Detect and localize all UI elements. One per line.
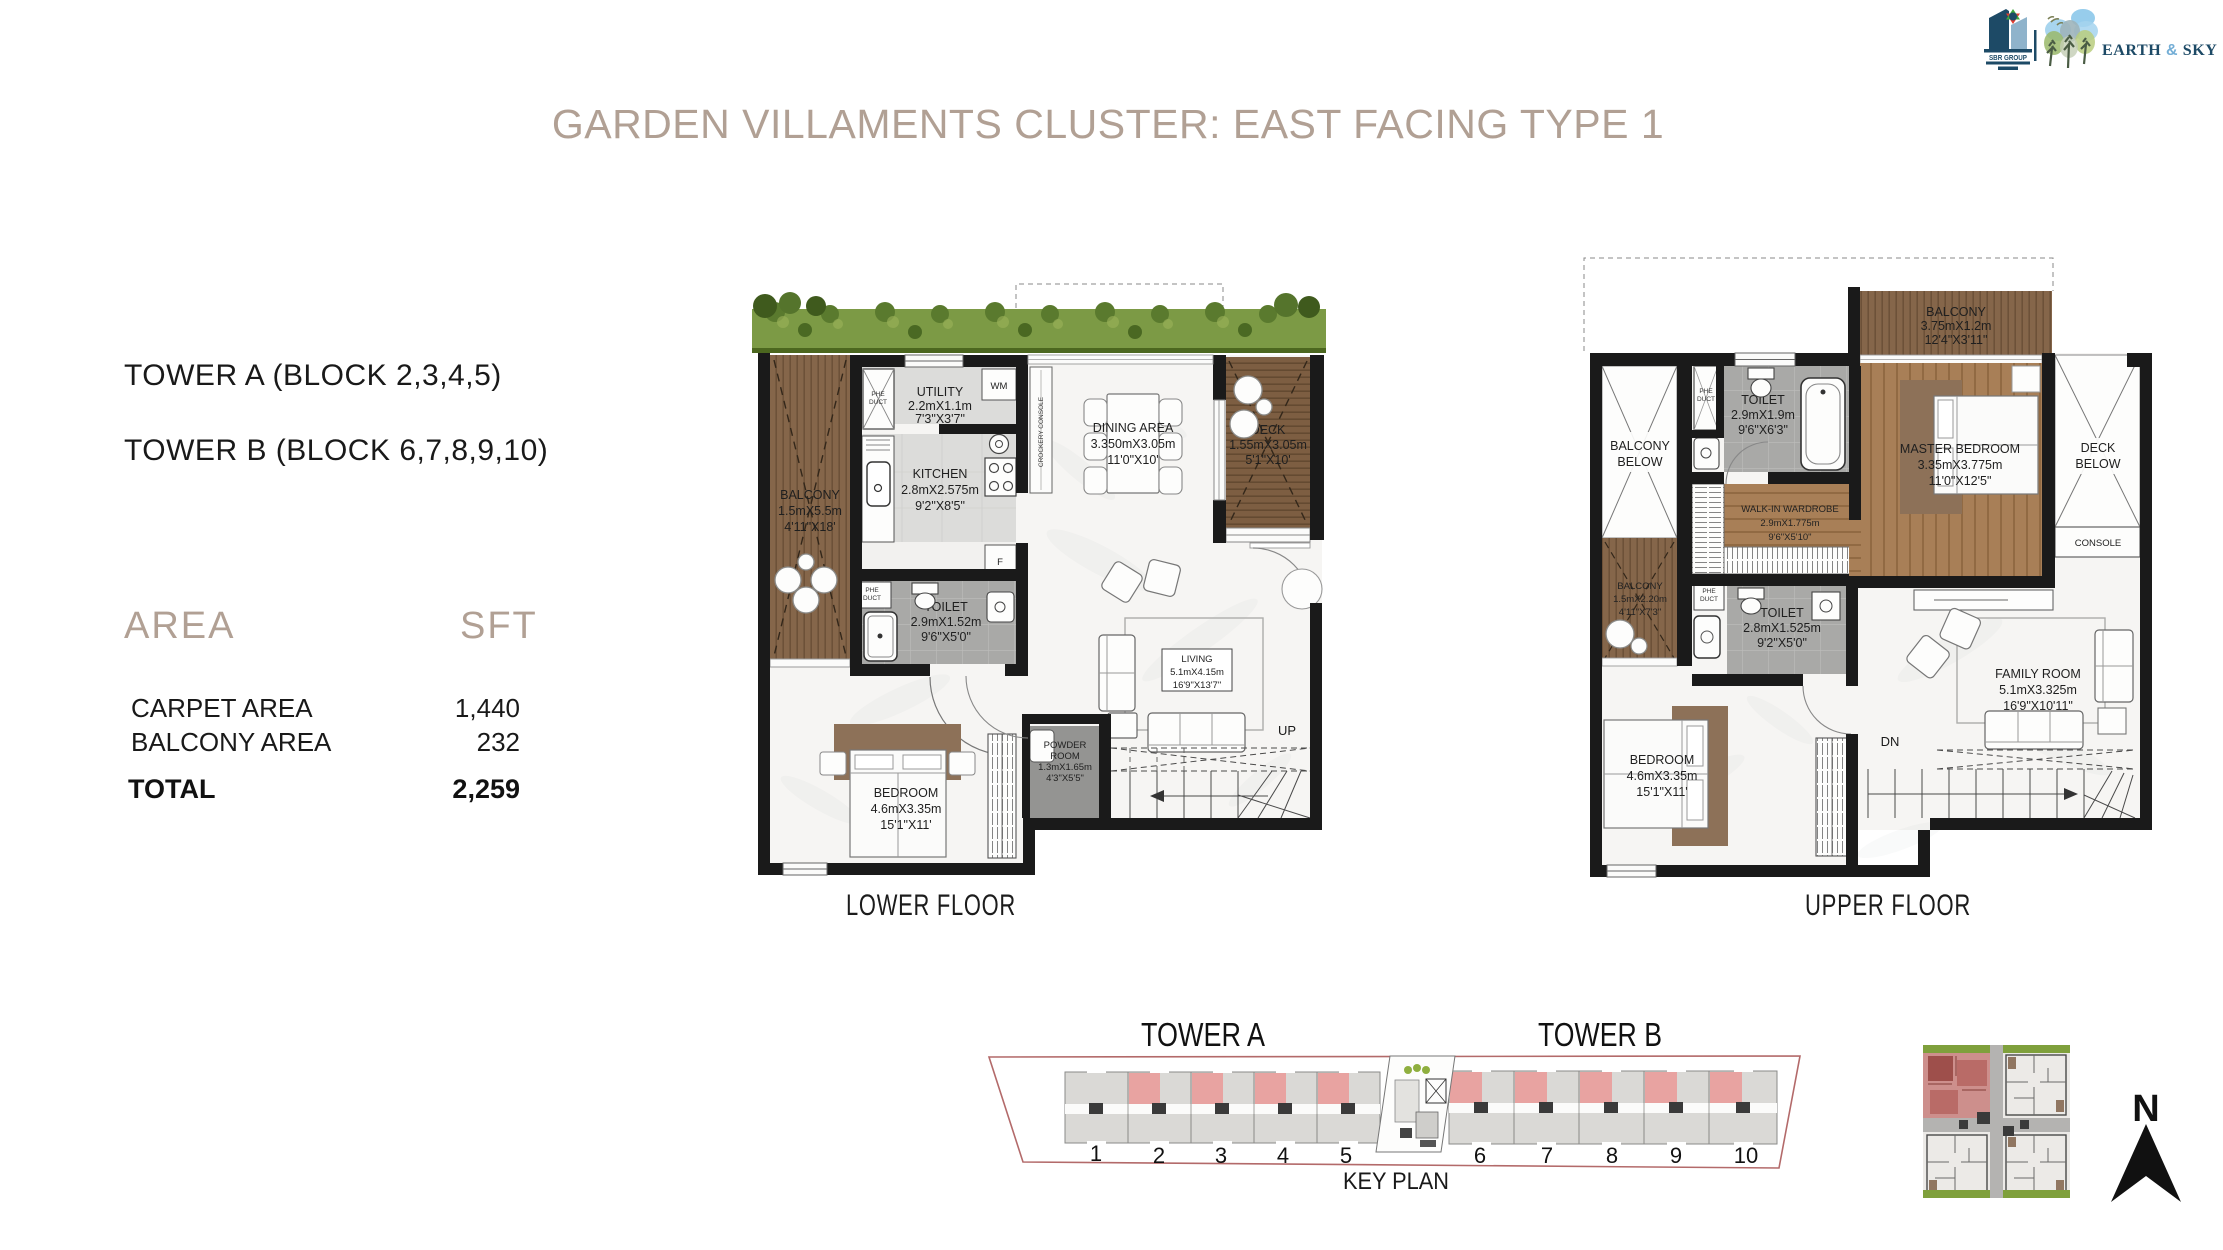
svg-text:BALCONY: BALCONY: [1617, 581, 1663, 592]
svg-text:GARDEN VILLAMENTS CLUSTER: EAS: GARDEN VILLAMENTS CLUSTER: EAST FACING T…: [552, 101, 1664, 147]
svg-text:PHE: PHE: [1699, 388, 1713, 395]
svg-text:4'11"X7'3": 4'11"X7'3": [1619, 607, 1661, 618]
svg-text:DUCT: DUCT: [869, 399, 887, 406]
svg-text:BALCONY: BALCONY: [1610, 439, 1670, 453]
svg-text:11'0"X12'5": 11'0"X12'5": [1929, 474, 1992, 488]
svg-text:BEDROOM: BEDROOM: [874, 786, 939, 800]
svg-text:KEY PLAN: KEY PLAN: [1343, 1168, 1449, 1195]
svg-text:9'6"X5'0": 9'6"X5'0": [921, 630, 971, 644]
svg-text:2.2mX1.1m: 2.2mX1.1m: [908, 399, 972, 413]
svg-text:9'6"X5'10": 9'6"X5'10": [1768, 532, 1811, 543]
svg-text:7: 7: [1541, 1143, 1553, 1168]
svg-text:TOILET: TOILET: [1760, 606, 1804, 620]
svg-text:5'1"X10': 5'1"X10': [1245, 453, 1290, 467]
svg-text:UP: UP: [1278, 723, 1296, 738]
svg-text:F: F: [997, 557, 1003, 568]
svg-text:EARTH & SKY: EARTH & SKY: [2102, 42, 2217, 59]
svg-text:SBR GROUP: SBR GROUP: [1989, 55, 2027, 62]
svg-text:4.6mX3.35m: 4.6mX3.35m: [871, 802, 942, 816]
svg-text:FAMILY ROOM: FAMILY ROOM: [1995, 667, 2081, 681]
svg-text:1.5mX2.20m: 1.5mX2.20m: [1613, 594, 1667, 605]
svg-text:10: 10: [1734, 1143, 1758, 1168]
svg-text:TOWER A: TOWER A: [1141, 1016, 1265, 1053]
svg-text:5.1mX4.15m: 5.1mX4.15m: [1170, 667, 1224, 678]
svg-text:2,259: 2,259: [452, 774, 520, 804]
svg-text:3.35mX3.775m: 3.35mX3.775m: [1918, 458, 2003, 472]
svg-text:CARPET AREA: CARPET AREA: [131, 693, 313, 723]
svg-text:CONSOLE: CONSOLE: [2075, 538, 2121, 549]
svg-text:4.6mX3.35m: 4.6mX3.35m: [1627, 769, 1698, 783]
svg-text:TOWER A (BLOCK 2,3,4,5): TOWER A (BLOCK 2,3,4,5): [124, 359, 502, 392]
svg-text:KITCHEN: KITCHEN: [913, 467, 968, 481]
svg-text:2.9mX1.9m: 2.9mX1.9m: [1731, 408, 1795, 422]
svg-text:4: 4: [1277, 1143, 1289, 1168]
svg-text:3.350mX3.05m: 3.350mX3.05m: [1091, 437, 1176, 451]
svg-text:BELOW: BELOW: [1617, 455, 1662, 469]
svg-text:16'9"X13'7": 16'9"X13'7": [1173, 680, 1221, 691]
svg-text:15'1"X11': 15'1"X11': [1636, 785, 1687, 799]
svg-text:232: 232: [477, 727, 520, 757]
svg-text:4'11"X18': 4'11"X18': [784, 520, 835, 534]
svg-text:PHE: PHE: [1702, 588, 1716, 595]
svg-text:DUCT: DUCT: [863, 595, 881, 602]
svg-text:3.75mX1.2m: 3.75mX1.2m: [1921, 319, 1992, 333]
svg-text:POWDER: POWDER: [1044, 740, 1087, 751]
svg-text:BELOW: BELOW: [2075, 457, 2120, 471]
svg-text:DN: DN: [1881, 734, 1900, 749]
svg-text:DECK: DECK: [2081, 441, 2116, 455]
svg-text:9'2"X5'0": 9'2"X5'0": [1757, 636, 1807, 650]
svg-text:LOWER FLOOR: LOWER FLOOR: [846, 889, 1016, 922]
svg-text:BEDROOM: BEDROOM: [1630, 753, 1695, 767]
svg-text:SFT: SFT: [460, 605, 538, 647]
svg-text:WALK-IN WARDROBE: WALK-IN WARDROBE: [1741, 504, 1838, 515]
svg-text:15'1"X11': 15'1"X11': [880, 818, 931, 832]
svg-text:9'6"X6'3": 9'6"X6'3": [1738, 423, 1788, 437]
svg-text:9: 9: [1670, 1143, 1682, 1168]
svg-text:WM: WM: [991, 381, 1008, 392]
svg-text:7'3"X3'7": 7'3"X3'7": [915, 412, 965, 426]
svg-text:9'2"X8'5": 9'2"X8'5": [915, 499, 965, 513]
svg-text:BALCONY: BALCONY: [780, 488, 840, 502]
svg-text:TOWER B: TOWER B: [1538, 1016, 1662, 1053]
svg-text:2.8mX2.575m: 2.8mX2.575m: [901, 483, 979, 497]
svg-text:5: 5: [1340, 1143, 1352, 1168]
svg-text:UTILITY: UTILITY: [917, 385, 964, 399]
svg-text:DUCT: DUCT: [1700, 596, 1718, 603]
svg-text:UPPER FLOOR: UPPER FLOOR: [1805, 889, 1971, 922]
svg-text:DUCT: DUCT: [1697, 396, 1715, 403]
svg-text:2: 2: [1153, 1143, 1165, 1168]
svg-text:2.8mX1.525m: 2.8mX1.525m: [1743, 621, 1821, 635]
svg-text:PHE: PHE: [865, 587, 879, 594]
svg-text:1,440: 1,440: [455, 693, 520, 723]
svg-text:3: 3: [1215, 1143, 1227, 1168]
svg-text:AREA: AREA: [124, 605, 235, 647]
svg-text:12'4"X3'11": 12'4"X3'11": [1925, 333, 1988, 347]
svg-text:11'0"X10': 11'0"X10': [1107, 453, 1158, 467]
svg-text:1.55mX3.05m: 1.55mX3.05m: [1229, 438, 1307, 452]
svg-text:2.9mX1.52m: 2.9mX1.52m: [911, 615, 982, 629]
svg-text:1.5mX5.5m: 1.5mX5.5m: [778, 504, 842, 518]
svg-text:1.3mX1.65m: 1.3mX1.65m: [1038, 762, 1092, 773]
svg-text:CROCKERY CONSOLE: CROCKERY CONSOLE: [1038, 396, 1045, 467]
svg-text:5.1mX3.325m: 5.1mX3.325m: [1999, 683, 2077, 697]
svg-text:BALCONY: BALCONY: [1926, 305, 1986, 319]
svg-text:6: 6: [1474, 1143, 1486, 1168]
svg-text:TOWER B (BLOCK 6,7,8,9,10): TOWER B (BLOCK 6,7,8,9,10): [124, 434, 548, 467]
svg-text:4'3"X5'5": 4'3"X5'5": [1046, 773, 1084, 784]
svg-text:1: 1: [1090, 1141, 1102, 1166]
svg-text:BALCONY AREA: BALCONY AREA: [131, 727, 332, 757]
svg-text:TOTAL: TOTAL: [128, 774, 216, 804]
svg-text:DINING AREA: DINING AREA: [1093, 421, 1174, 435]
svg-text:2.9mX1.775m: 2.9mX1.775m: [1760, 518, 1819, 529]
svg-text:N: N: [2132, 1088, 2159, 1130]
svg-text:ROOM: ROOM: [1050, 751, 1080, 762]
svg-text:8: 8: [1606, 1143, 1618, 1168]
svg-text:PHE: PHE: [871, 391, 885, 398]
svg-text:LIVING: LIVING: [1181, 654, 1212, 665]
svg-text:MASTER BEDROOM: MASTER BEDROOM: [1900, 442, 2020, 456]
